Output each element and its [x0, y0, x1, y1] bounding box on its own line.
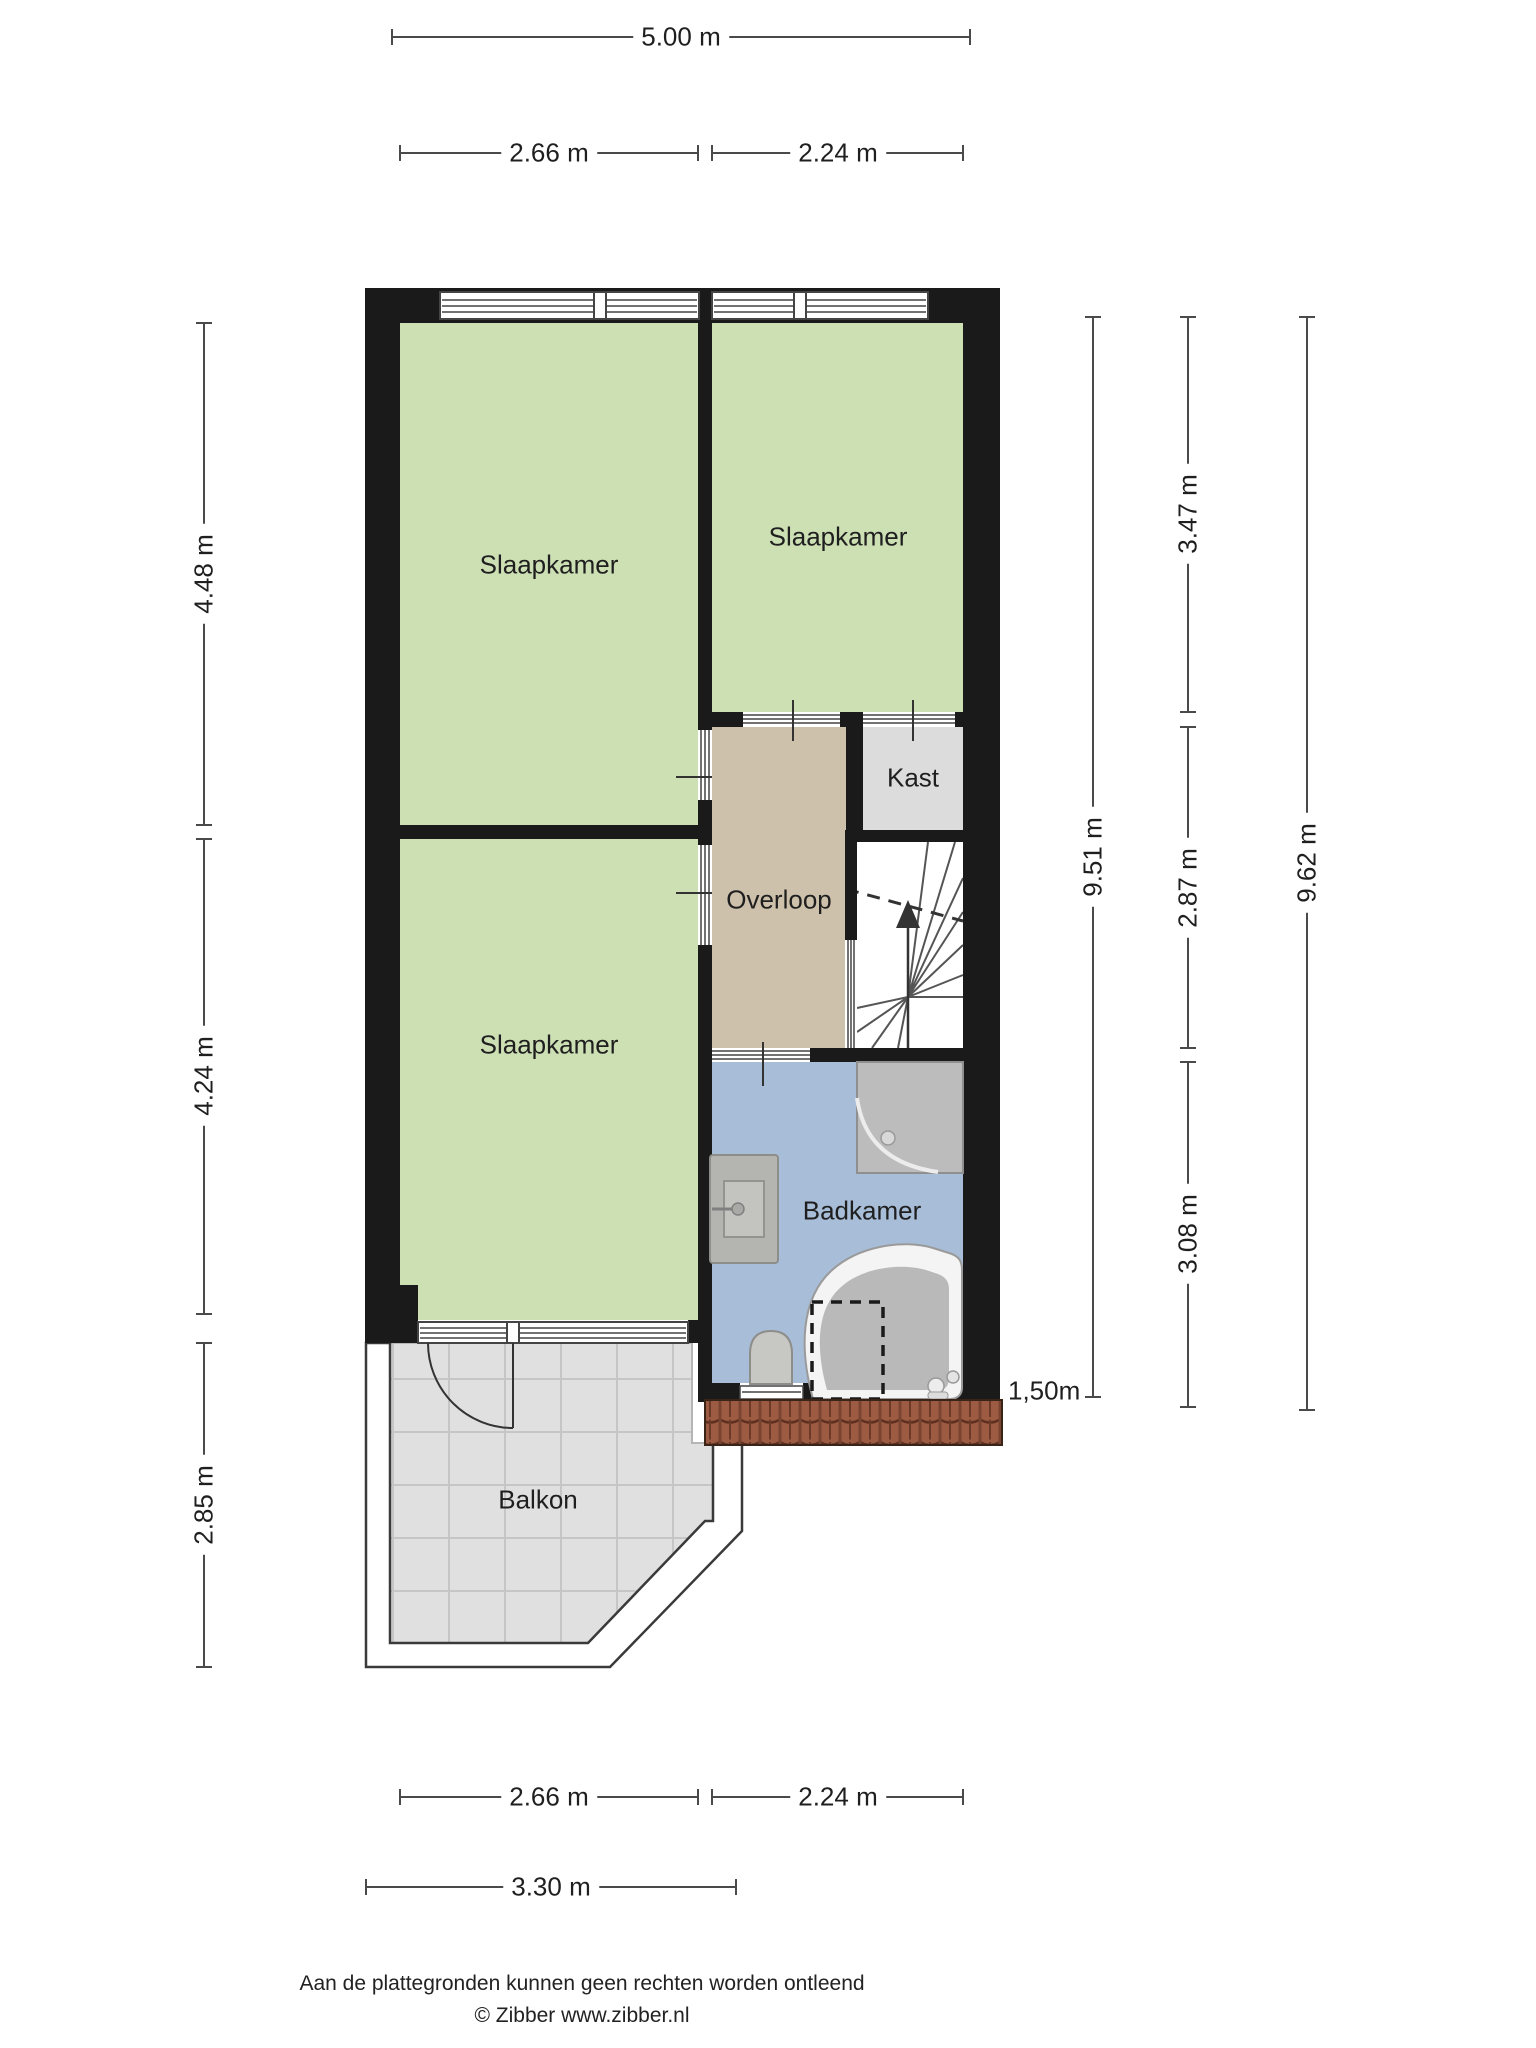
- toilet: [750, 1331, 792, 1384]
- room-bedroom-sw-floor: [400, 839, 698, 1320]
- room-label-bathroom: Badkamer: [803, 1197, 922, 1226]
- footer-disclaimer: Aan de plattegronden kunnen geen rechten…: [299, 1972, 864, 1996]
- sink-vanity: [710, 1155, 778, 1263]
- dim-right-inner-total-label: 9.51 m: [1078, 807, 1109, 907]
- dim-top-right-label: 2.24 m: [790, 138, 886, 169]
- dim-left-lower-label: 2.85 m: [189, 1455, 220, 1555]
- stairwell-floor: [857, 842, 963, 1048]
- room-label-bedroom-sw: Slaapkamer: [480, 1031, 619, 1060]
- floorplan-canvas: [0, 0, 1536, 2048]
- floorplan-page: 5.00 m 2.66 m 2.24 m 4.48 m 4.24 m 2.85 …: [0, 0, 1536, 2048]
- dim-bottom-balcony-label: 3.30 m: [503, 1872, 599, 1903]
- roof-edge: [705, 1400, 1002, 1445]
- dim-right-upper-label: 3.47 m: [1173, 464, 1204, 564]
- footer-credit: © Zibber www.zibber.nl: [474, 2004, 689, 2028]
- room-label-landing: Overloop: [726, 886, 832, 915]
- dim-bottom-left-label: 2.66 m: [501, 1782, 597, 1813]
- dim-right-lower-label: 3.08 m: [1173, 1184, 1204, 1284]
- dim-left-upper-label: 4.48 m: [189, 524, 220, 624]
- window-top-left: [440, 292, 699, 319]
- dim-left-middle-label: 4.24 m: [189, 1026, 220, 1126]
- room-label-bedroom-ne: Slaapkamer: [769, 523, 908, 552]
- dim-top-left-label: 2.66 m: [501, 138, 597, 169]
- dim-top-total-label: 5.00 m: [633, 22, 729, 53]
- room-bedroom-ne-floor: [712, 323, 963, 712]
- window-bathroom: [740, 1386, 803, 1399]
- dim-bottom-right-label: 2.24 m: [790, 1782, 886, 1813]
- dim-headroom-label: 1,50m: [1008, 1377, 1080, 1406]
- dim-right-middle-label: 2.87 m: [1173, 838, 1204, 938]
- room-label-bedroom-nw: Slaapkamer: [480, 551, 619, 580]
- opening-stairs: [845, 940, 857, 1048]
- shower: [857, 1062, 963, 1173]
- window-top-right: [712, 292, 928, 319]
- dim-right-outer-total-label: 9.62 m: [1292, 813, 1323, 913]
- room-label-closet: Kast: [887, 764, 939, 793]
- room-label-balcony: Balkon: [498, 1486, 578, 1515]
